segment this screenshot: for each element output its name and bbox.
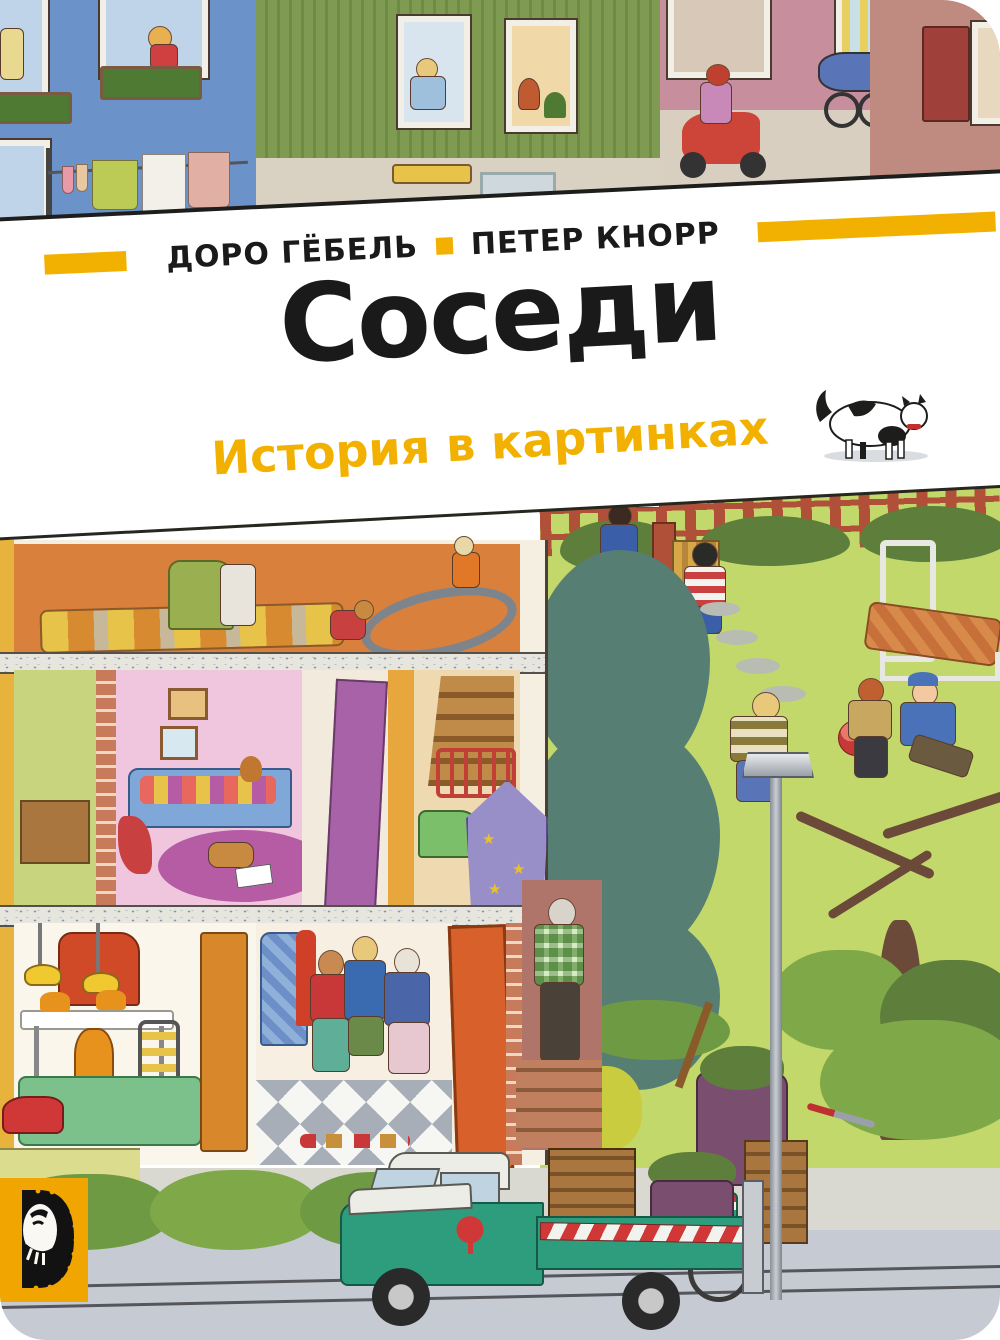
stepping-stone-2 xyxy=(716,630,758,645)
brick-pillar-1 xyxy=(96,670,116,905)
father-shorts xyxy=(348,1016,384,1056)
cat-illustration xyxy=(798,378,948,464)
scooter-wheel-front xyxy=(680,152,706,178)
truck-wheel-rear xyxy=(622,1272,680,1330)
picture-frame-2 xyxy=(160,726,198,760)
attic-kid-orange xyxy=(452,552,480,588)
orange-dresser xyxy=(200,932,248,1152)
flower-box xyxy=(0,92,72,124)
woman-window-top xyxy=(410,76,446,110)
lamppost-head xyxy=(742,752,814,778)
truck-crate xyxy=(548,1148,636,1222)
truck-hazard-stripe xyxy=(540,1222,758,1244)
plaid-man-shirt xyxy=(534,924,584,986)
stepping-stone-3 xyxy=(736,658,780,674)
main-illustration: ★ ★ ★ xyxy=(0,480,1000,1340)
cat-in-window xyxy=(518,78,540,110)
truck-body xyxy=(340,1202,544,1286)
street-table xyxy=(480,172,556,208)
pendant-lamp-1-shade xyxy=(24,964,62,986)
publisher-logo xyxy=(0,1178,88,1302)
orange-pillar xyxy=(388,670,414,905)
orange-chair-1 xyxy=(40,992,70,1012)
mother-teal-skirt xyxy=(312,1018,350,1072)
front-door-open xyxy=(448,924,515,1172)
orange-chair-2 xyxy=(96,990,126,1010)
grandma-skirt xyxy=(388,1022,430,1074)
showcase-window xyxy=(972,22,1000,124)
truck-rear-frame xyxy=(742,1180,764,1294)
entry-steps xyxy=(516,1060,602,1148)
stepping-stone-1 xyxy=(700,602,740,616)
window-plant xyxy=(544,92,566,118)
toy-car-red xyxy=(2,1096,64,1134)
grandma-cardigan xyxy=(384,972,430,1026)
shop-awning xyxy=(392,164,472,184)
scooter-rider xyxy=(700,82,732,124)
accent-bar-left xyxy=(44,250,127,274)
window-lower-left xyxy=(0,140,50,242)
laundry-socks-2 xyxy=(76,164,88,192)
truck-wheel-front xyxy=(372,1268,430,1326)
redhead-girl-pants xyxy=(854,736,888,778)
laundry-towel-pink xyxy=(188,152,230,208)
street-hedge-2 xyxy=(150,1170,320,1250)
teddy-bear xyxy=(240,756,262,782)
author-separator-square xyxy=(436,237,454,255)
picture-frame-1 xyxy=(168,688,208,720)
attic-person xyxy=(220,564,256,626)
tent-star-2: ★ xyxy=(512,860,525,878)
plaid-man-trousers xyxy=(540,982,580,1062)
study-desk xyxy=(20,800,90,864)
garden-hedge-2 xyxy=(700,516,850,566)
house-left-wall xyxy=(0,540,14,1165)
red-door xyxy=(922,26,970,122)
father-blue-shirt xyxy=(344,960,386,1020)
book-cover: ДОРО ГЁБЕЛЬ ПЕТЕР КНОРР Соседи История в… xyxy=(0,0,1000,1340)
pendant-lamp-2 xyxy=(96,923,100,973)
neighbor-in-window xyxy=(0,28,24,80)
laundry-socks xyxy=(62,166,74,194)
flower-box-2 xyxy=(100,66,202,100)
gate-boy-head xyxy=(692,542,718,568)
attic-kid-red-head xyxy=(354,600,374,620)
scooter-rider-helmet xyxy=(706,64,730,86)
bush-right-3 xyxy=(820,1020,1000,1140)
redhead-girl-vest xyxy=(848,700,892,740)
scooter-wheel-rear xyxy=(740,152,766,178)
pram-wheel xyxy=(824,92,860,128)
laundry-towel-green xyxy=(92,160,138,210)
attic-kid-orange-head xyxy=(454,536,474,556)
girl-reading xyxy=(208,842,254,868)
top-street-scene xyxy=(0,0,1000,235)
truck-logo-stem xyxy=(468,1232,473,1254)
pendant-lamp-1 xyxy=(38,923,42,965)
lounge-chair-legs xyxy=(880,652,1000,681)
tent-star-1: ★ xyxy=(482,830,495,848)
lamppost-pole xyxy=(770,772,782,1300)
hoodie-boy-cap xyxy=(908,672,938,686)
tent-star-3: ★ xyxy=(488,880,501,898)
study-room xyxy=(14,670,96,905)
shoes-row xyxy=(300,1134,410,1148)
